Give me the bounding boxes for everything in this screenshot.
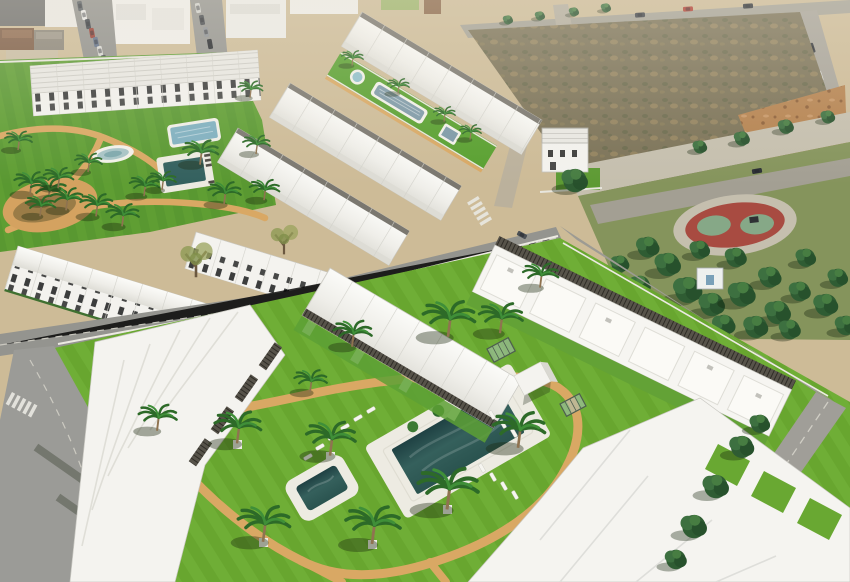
atmospheric-haze [0, 0, 850, 185]
render-canvas: High-angle aerial render of a new-build … [0, 0, 850, 582]
utility-building [697, 268, 723, 289]
aerial-render: High-angle aerial render of a new-build … [0, 0, 850, 582]
